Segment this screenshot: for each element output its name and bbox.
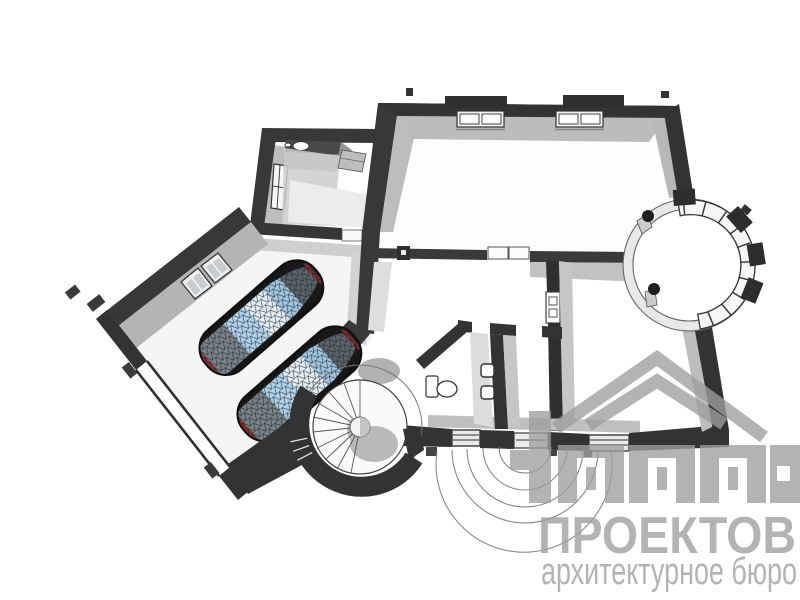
svg-text:архитектурное бюро: архитектурное бюро — [541, 551, 797, 593]
